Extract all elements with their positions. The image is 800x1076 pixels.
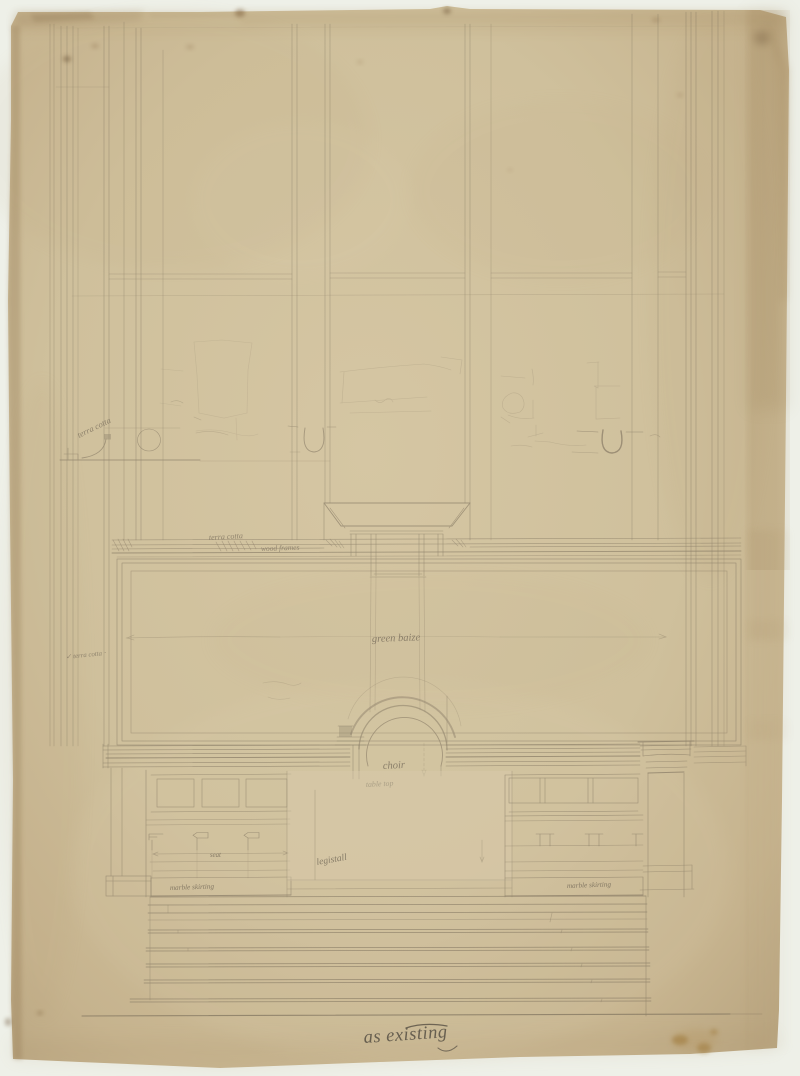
svg-text:wood frames: wood frames — [261, 543, 300, 553]
svg-text:seat: seat — [210, 852, 222, 859]
svg-text:green baize: green baize — [372, 632, 421, 645]
svg-text:marble skirting: marble skirting — [170, 882, 215, 892]
svg-text:marble skirting: marble skirting — [567, 880, 612, 890]
svg-text:choir: choir — [383, 760, 407, 772]
svg-text:terra cotta: terra cotta — [209, 531, 243, 542]
